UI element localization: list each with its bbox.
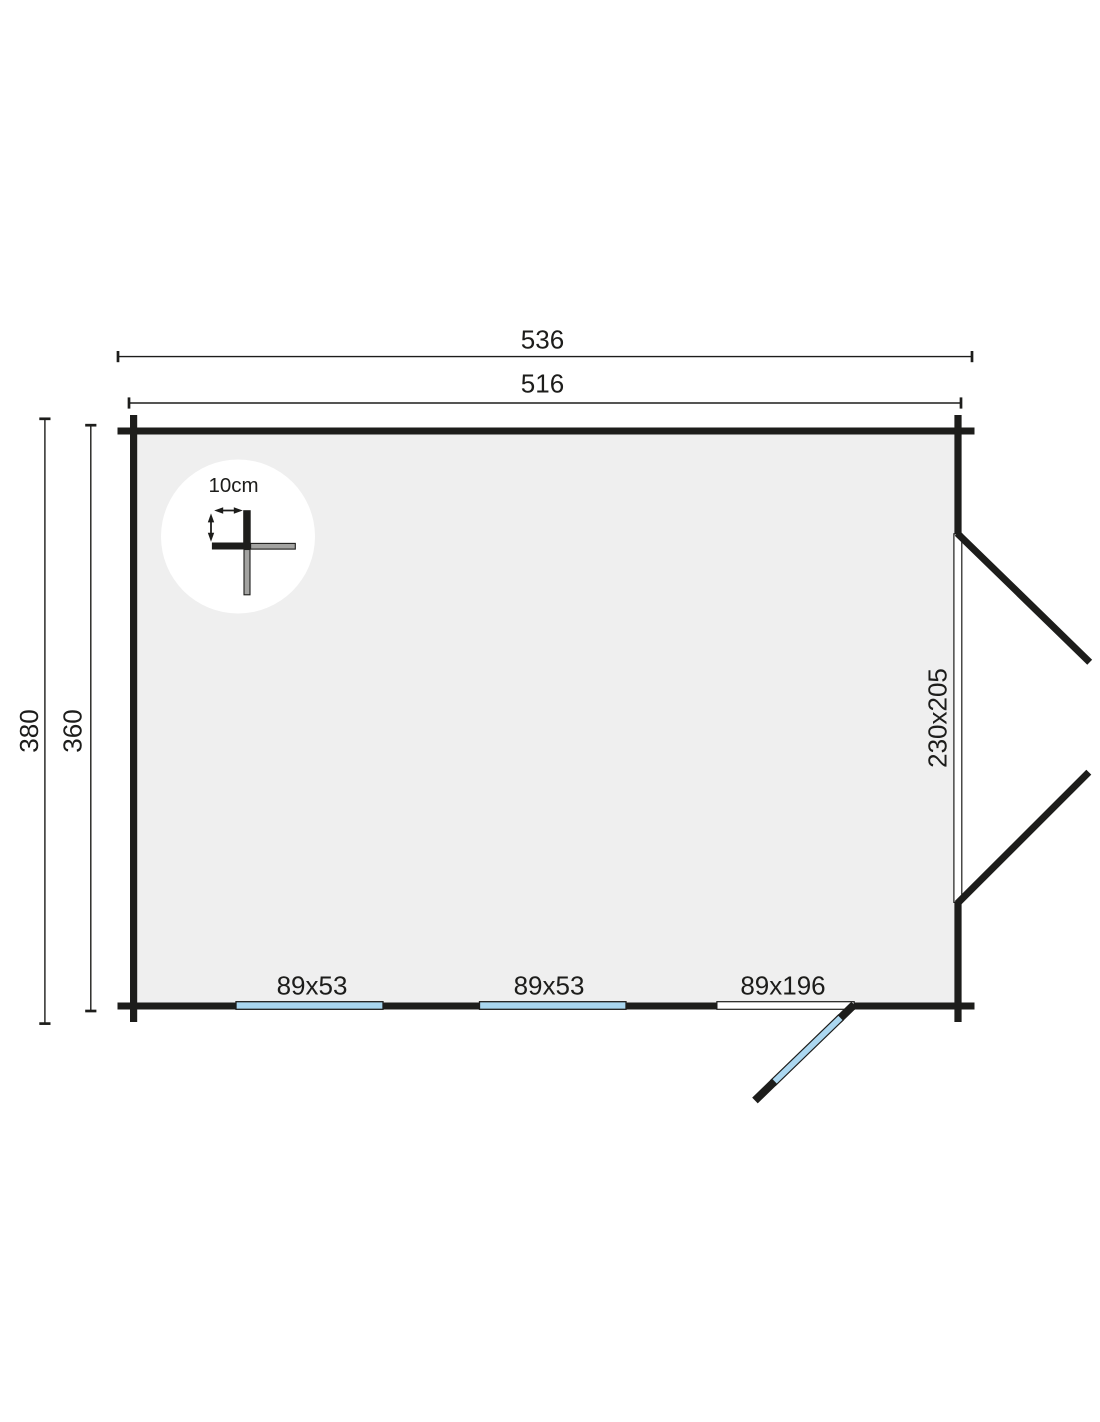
svg-text:89x53: 89x53 xyxy=(514,971,585,1001)
svg-text:89x196: 89x196 xyxy=(740,971,825,1001)
svg-text:516: 516 xyxy=(521,368,564,398)
svg-text:380: 380 xyxy=(14,709,44,752)
svg-text:360: 360 xyxy=(58,709,88,752)
svg-text:536: 536 xyxy=(521,325,564,355)
svg-text:10cm: 10cm xyxy=(209,474,259,497)
svg-text:230x205: 230x205 xyxy=(923,668,953,768)
svg-text:89x53: 89x53 xyxy=(277,971,348,1001)
